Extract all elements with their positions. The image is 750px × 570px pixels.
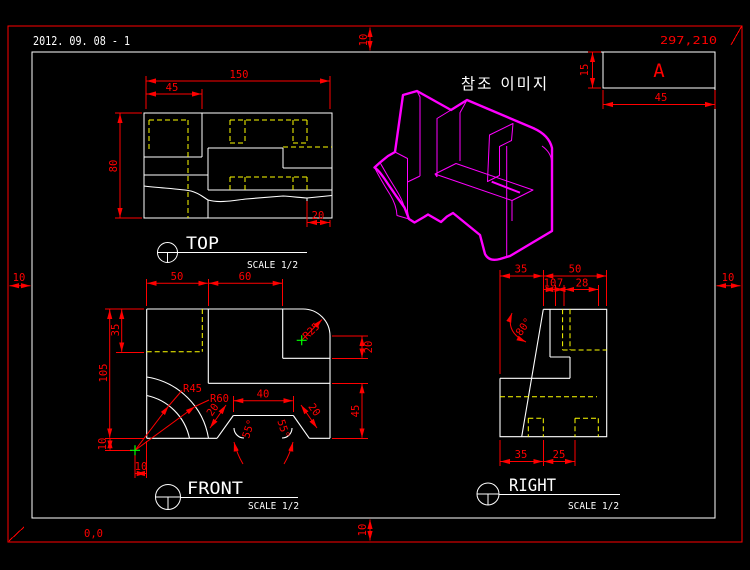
front-dim-45r-text: 45: [350, 405, 362, 418]
front-r45-leader: [135, 406, 169, 450]
front-r45-text: R45: [183, 383, 202, 395]
top-view-title-text: TOP: [186, 234, 219, 254]
front-view-outline: [147, 309, 330, 438]
front-angle-right-leader: [284, 442, 293, 464]
margin-dim-right-text: 10: [722, 272, 735, 284]
front-dim-50-text: 50: [171, 271, 184, 283]
front-view-hidden-lines: [147, 309, 203, 352]
right-view-title: RIGHT SCALE 1/2: [477, 476, 620, 512]
top-view-title: TOP SCALE 1/2: [158, 234, 308, 271]
top-view-scale-text: SCALE 1/2: [247, 260, 298, 271]
right-dim-7-text: 7: [557, 278, 563, 290]
front-dim-60-text: 60: [239, 271, 252, 283]
front-r45-leader2: [169, 391, 182, 407]
cad-drawing-sheet: 2012. 09. 08 - 1 297,210 0,0 10 10 10 10…: [0, 0, 750, 570]
right-dim-35b-text: 35: [515, 449, 528, 461]
corner-leader-bottom-left: [9, 527, 24, 541]
top-view-datum-cross: [158, 253, 178, 263]
front-dim-40-text: 40: [257, 389, 270, 401]
corner-leader-top-right: [731, 27, 742, 46]
front-dim-20r-text: 20: [363, 341, 375, 354]
front-r60-text: R60: [210, 393, 229, 405]
revision-width-dim-text: 45: [655, 92, 668, 104]
paper-border-red: [8, 26, 742, 542]
front-angle-right-text: 55°: [274, 418, 291, 440]
front-r25-text: R25: [301, 320, 323, 342]
revision-height-dim-text: 15: [579, 64, 591, 77]
right-view-scale-text: SCALE 1/2: [568, 501, 619, 512]
sheet-coord-origin: 0,0: [84, 528, 103, 540]
revision-block-ext-lines: [588, 52, 715, 109]
revision-block-label: A: [653, 60, 665, 82]
sheet-border: [8, 26, 742, 542]
drawing-canvas: 2012. 09. 08 - 1 297,210 0,0 10 10 10 10…: [0, 0, 750, 570]
front-view-datum-cross: [156, 497, 181, 510]
margin-dim-left-text: 10: [13, 272, 26, 284]
front-dim-20-right-text: 20: [305, 401, 322, 418]
front-center-mark-arc: [130, 445, 140, 455]
margin-dim-top-text: 10: [358, 34, 370, 47]
front-view-title: FRONT SCALE 1/2: [156, 479, 300, 512]
sheet-coord-top-right: 297,210: [660, 35, 717, 47]
iso-outline-thick: [375, 91, 553, 260]
front-view-scale-text: SCALE 1/2: [248, 501, 299, 512]
front-dim-35-text: 35: [110, 324, 122, 337]
date-title-text: 2012. 09. 08 - 1: [33, 34, 130, 48]
top-dim-20-text: 20: [312, 210, 325, 222]
right-dim-10-text: 10: [544, 278, 557, 290]
right-view-datum-cross: [477, 494, 499, 505]
top-view: 150 45 80 20 TOP SCALE 1/2: [108, 69, 332, 271]
top-dim-80-text: 80: [108, 160, 120, 173]
front-r60-leader2: [195, 400, 209, 407]
right-dim-50t-text: 50: [569, 264, 582, 276]
top-view-outline: [144, 113, 332, 218]
iso-caption-text: 참조 이미지: [461, 75, 549, 93]
top-view-hidden-lines: [149, 120, 332, 218]
top-view-ext-lines: [115, 76, 330, 227]
margin-dim-bottom-text: 10: [357, 524, 369, 537]
front-view-title-text: FRONT: [187, 479, 243, 499]
right-dim-28-text: 28: [576, 278, 589, 290]
right-angle-text: 80°: [514, 316, 535, 338]
iso-notch-edge: [492, 182, 520, 193]
front-dim-10v-text: 10: [97, 438, 109, 451]
right-view: 35 50 10 7 28 80° 35 25 RIGHT SCALE 1/2: [477, 264, 620, 513]
top-view-break-line: [144, 186, 332, 202]
iso-view: 참조 이미지: [375, 75, 553, 260]
top-dim-150-text: 150: [230, 69, 249, 81]
front-view: 50 60 35 105 10 10 40 20 20 55° 55° R45 …: [97, 271, 375, 512]
front-angle-left-text: 55°: [240, 418, 257, 440]
right-dim-25b-text: 25: [553, 449, 566, 461]
right-dim-35t-text: 35: [515, 264, 528, 276]
front-dim-10h-text: 10: [135, 461, 148, 473]
right-view-title-text: RIGHT: [509, 476, 556, 496]
top-dim-45-text: 45: [166, 82, 179, 94]
front-angle-left-leader: [234, 442, 243, 464]
revision-block: A 15 45: [579, 52, 715, 109]
front-dim-105-text: 105: [98, 364, 110, 383]
